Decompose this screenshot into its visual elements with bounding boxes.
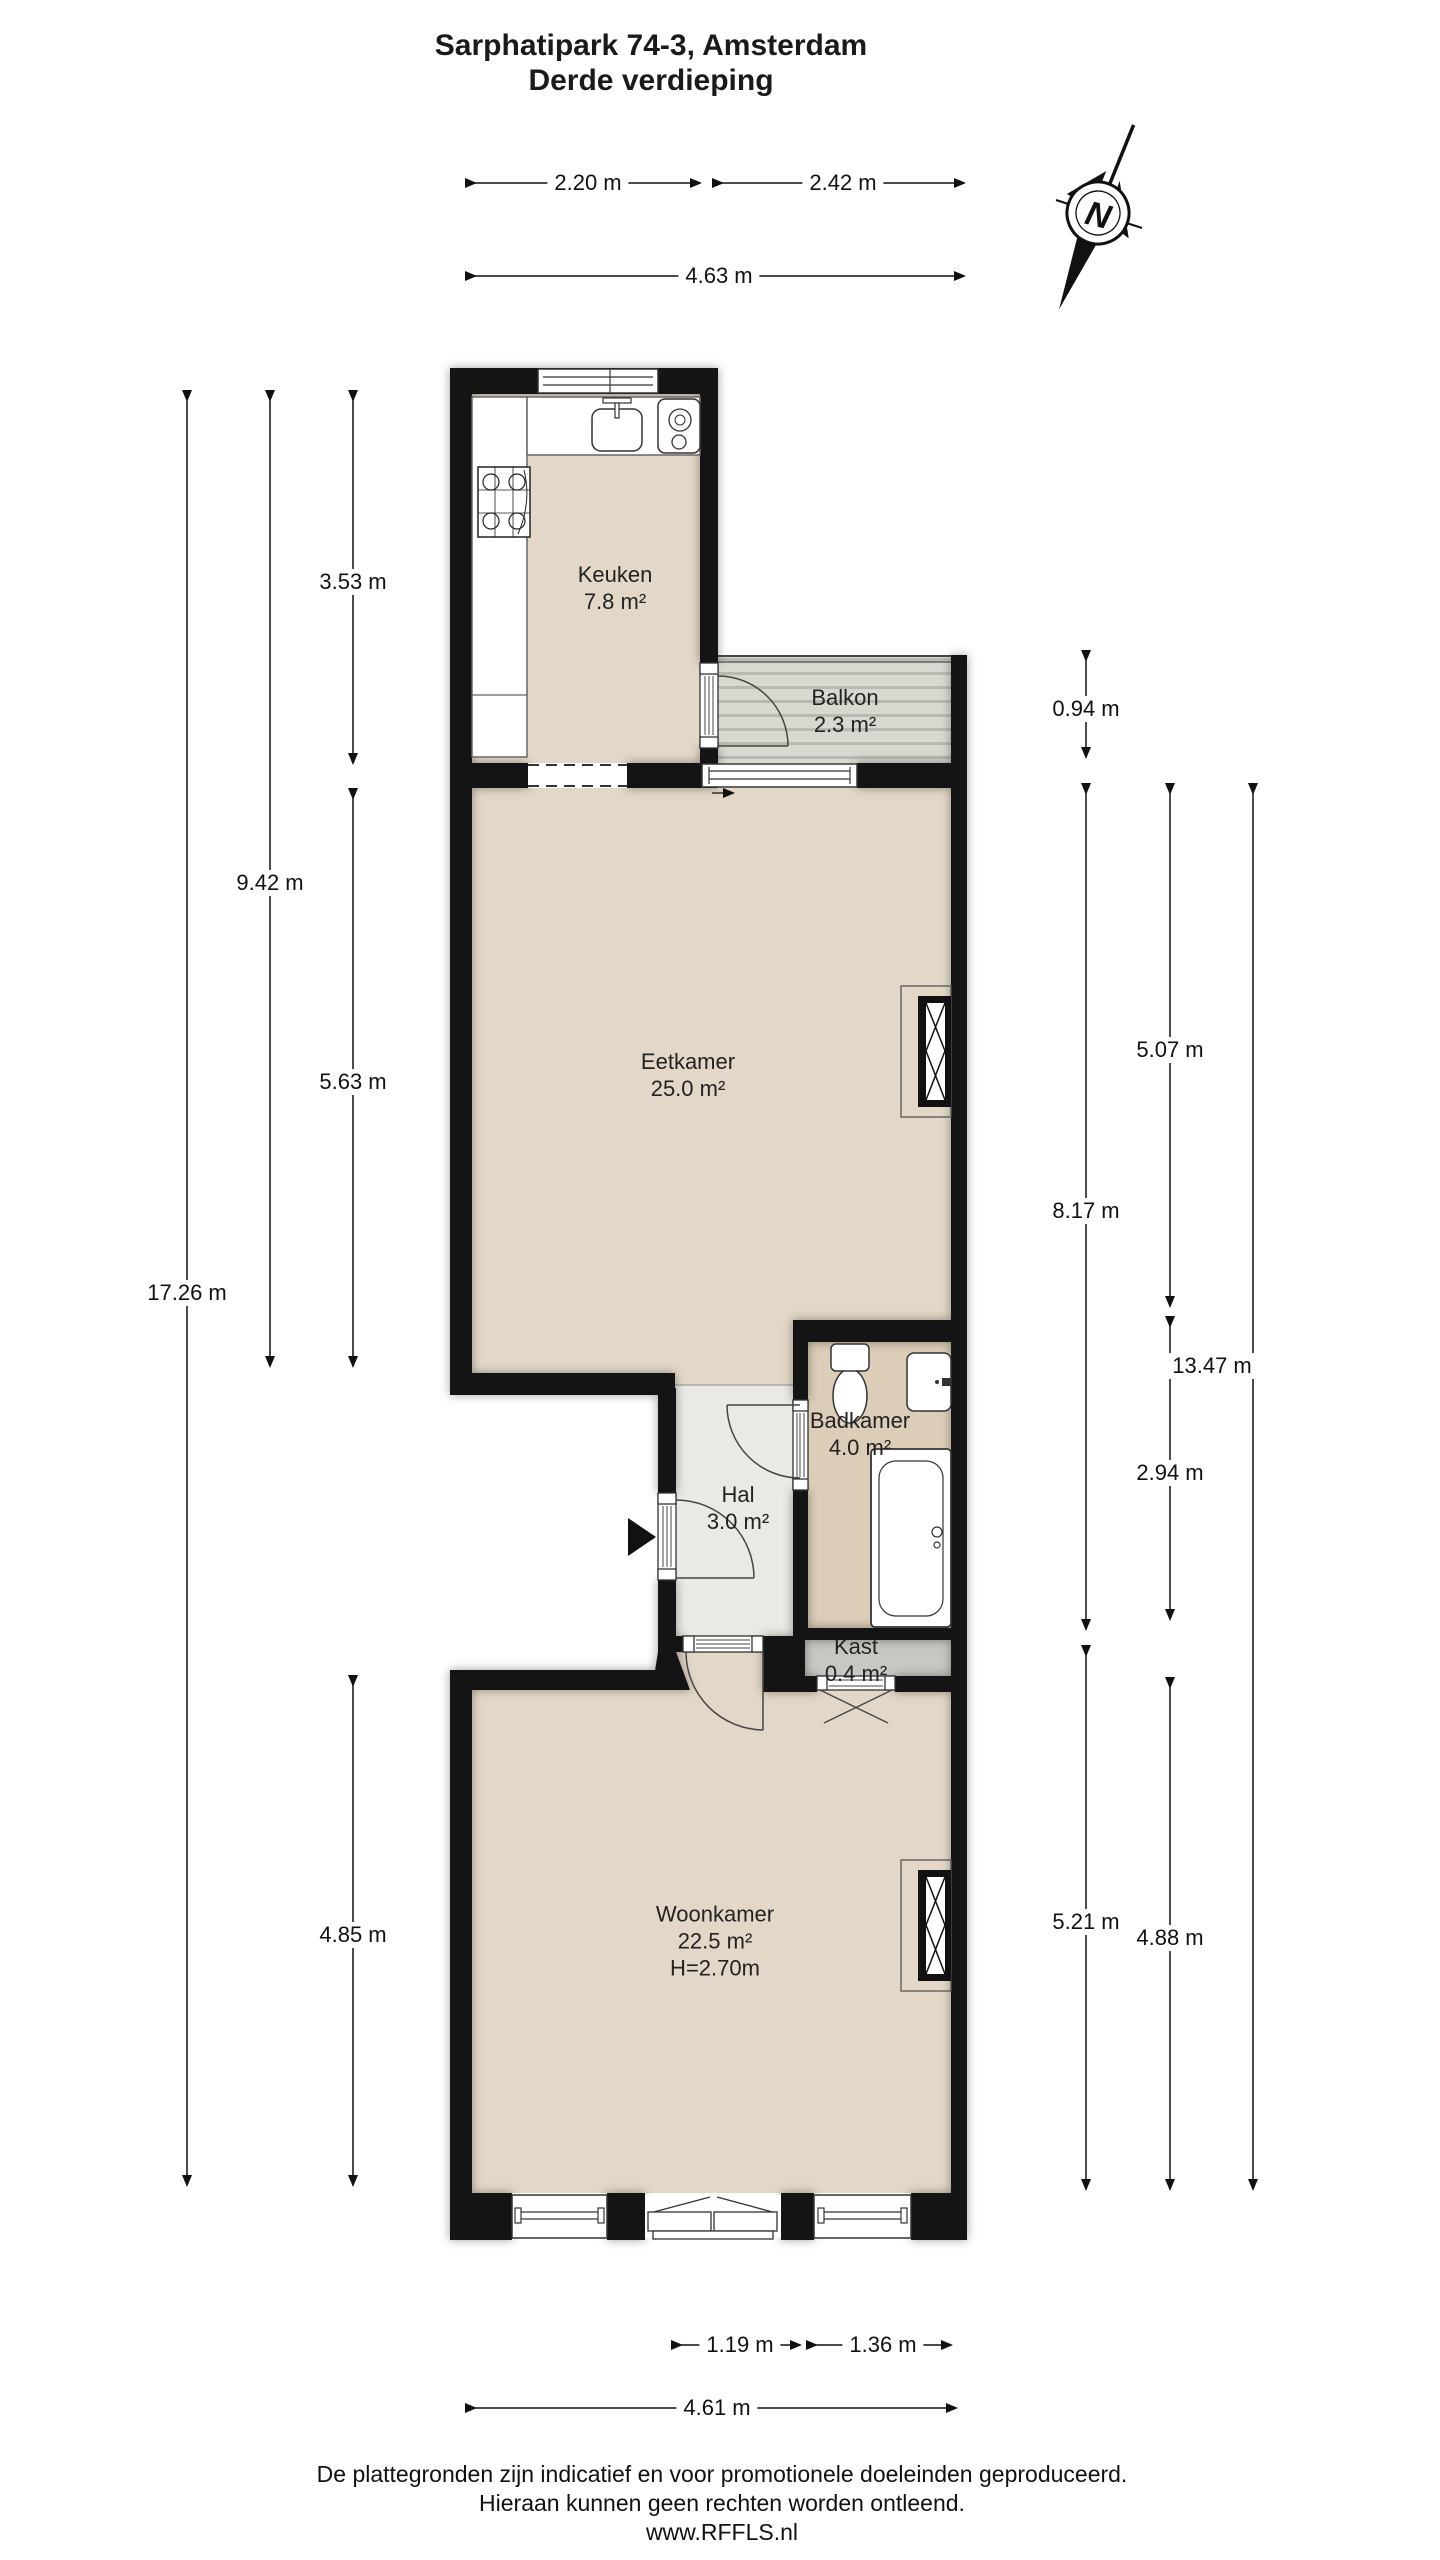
dim-top-right: 2.42 m xyxy=(802,170,883,196)
dim-right-balkon: 0.94 m xyxy=(1045,696,1126,722)
dim-right-woonkamer-b: 4.88 m xyxy=(1129,1925,1210,1951)
washbasin-icon xyxy=(907,1353,951,1411)
dim-right-badkamer: 2.94 m xyxy=(1129,1460,1210,1486)
title-floor: Derde verdieping xyxy=(435,63,867,98)
stove-icon xyxy=(478,467,530,537)
balkon-label: Balkon 2.3 m² xyxy=(811,684,878,738)
boiler-icon xyxy=(658,399,700,453)
entrance-arrow-icon xyxy=(628,1518,656,1556)
dim-left-keuken: 3.53 m xyxy=(312,569,393,595)
dim-left-total: 17.26 m xyxy=(140,1280,234,1306)
woonkamer-label: Woonkamer 22.5 m² H=2.70m xyxy=(656,1901,774,1982)
eetkamer-label: Eetkamer 25.0 m² xyxy=(641,1048,735,1102)
page-title: Sarphatipark 74-3, Amsterdam Derde verdi… xyxy=(435,28,867,98)
dim-bottom-door: 1.19 m xyxy=(699,2332,780,2358)
woonkamer-french-doors-icon xyxy=(645,2195,781,2239)
dim-bottom-window: 1.36 m xyxy=(842,2332,923,2358)
dim-top-total: 4.63 m xyxy=(678,263,759,289)
woonkamer-window-right-icon xyxy=(814,2195,911,2238)
bathtub-icon xyxy=(871,1449,951,1627)
footer-line-3: www.RFFLS.nl xyxy=(317,2518,1128,2547)
open-passage xyxy=(528,764,627,787)
footer-disclaimer: De plattegronden zijn indicatief en voor… xyxy=(317,2460,1128,2547)
dim-top-left: 2.20 m xyxy=(547,170,628,196)
badkamer-label: Badkamer 4.0 m² xyxy=(810,1407,910,1461)
dim-right-eetkamer: 5.07 m xyxy=(1129,1037,1210,1063)
dim-left-upper: 9.42 m xyxy=(229,870,310,896)
keuken-window-icon xyxy=(538,369,658,393)
keuken-label: Keuken 7.8 m² xyxy=(578,561,653,615)
hal-label: Hal 3.0 m² xyxy=(707,1481,769,1535)
dim-left-eetkamer: 5.63 m xyxy=(312,1069,393,1095)
title-address: Sarphatipark 74-3, Amsterdam xyxy=(435,28,867,63)
kast-label: Kast 0.4 m² xyxy=(825,1633,887,1687)
woonkamer-window-left-icon xyxy=(512,2195,607,2238)
dim-right-upper: 8.17 m xyxy=(1045,1198,1126,1224)
dim-left-woonkamer: 4.85 m xyxy=(312,1922,393,1948)
footer-line-1: De plattegronden zijn indicatief en voor… xyxy=(317,2460,1128,2489)
dim-right-woonkamer-a: 5.21 m xyxy=(1045,1909,1126,1935)
kitchen-counter-left xyxy=(472,397,527,757)
dim-bottom-total: 4.61 m xyxy=(676,2395,757,2421)
dim-right-total: 13.47 m xyxy=(1165,1353,1259,1379)
balkon-window-icon xyxy=(702,764,857,787)
floorplan-page: { "title": { "line1": "Sarphatipark 74-3… xyxy=(0,0,1440,2560)
footer-line-2: Hieraan kunnen geen rechten worden ontle… xyxy=(317,2489,1128,2518)
